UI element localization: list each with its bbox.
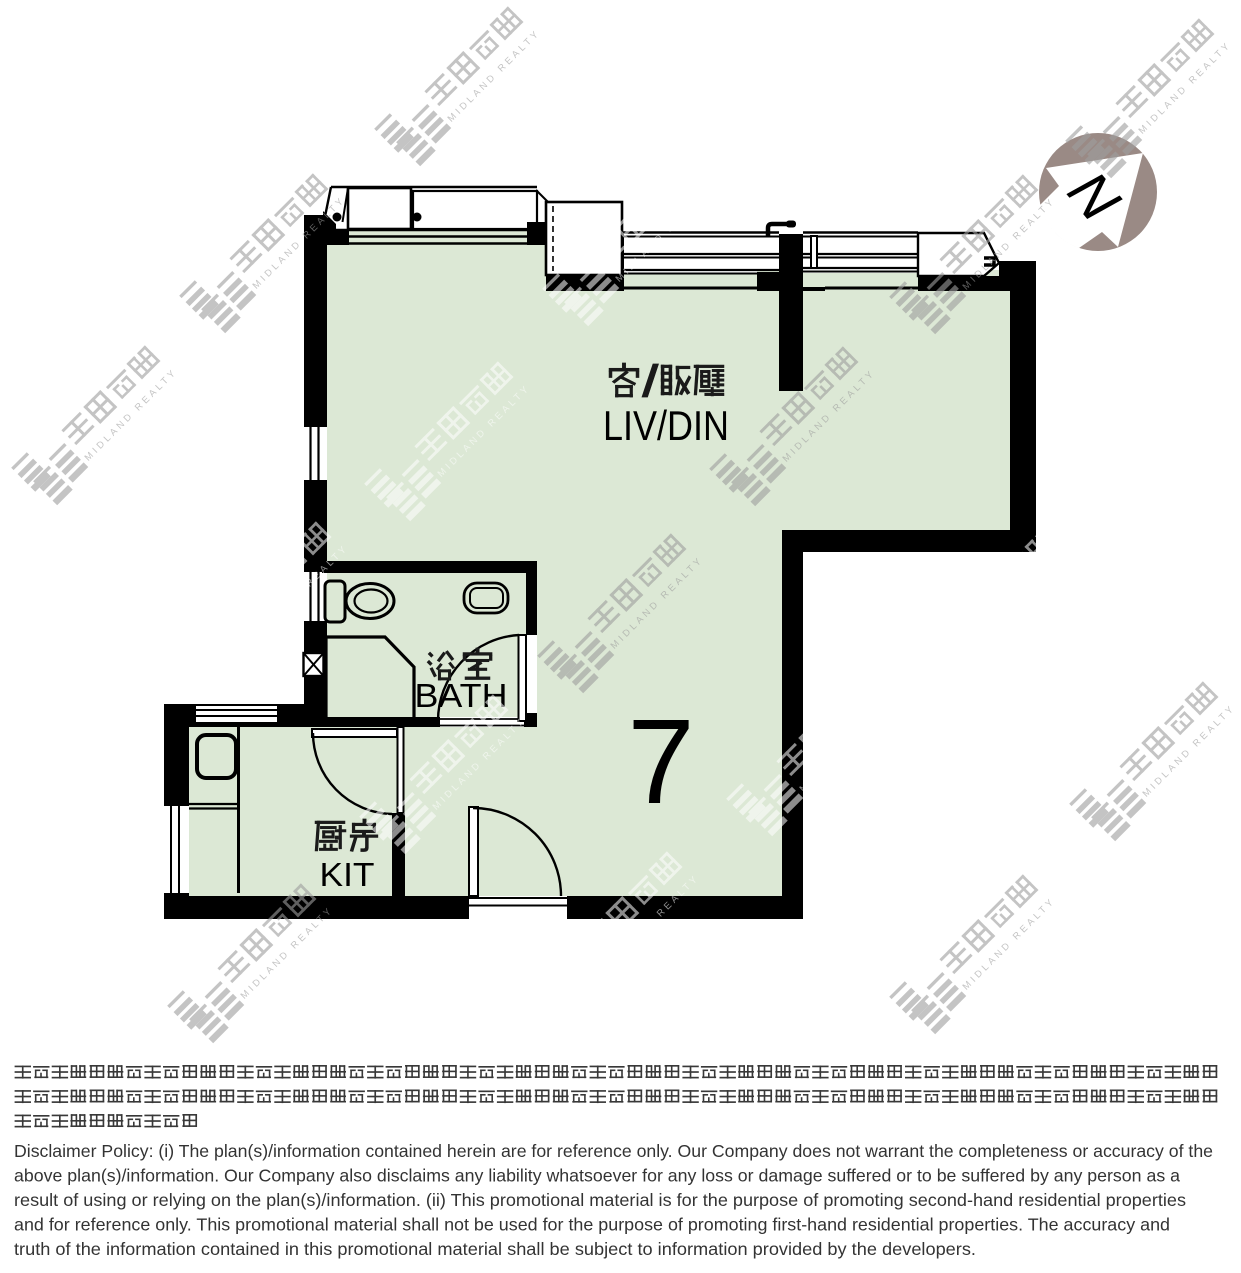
svg-text:KIT: KIT <box>320 856 375 893</box>
svg-text:and for reference only. This p: and for reference only. This promotional… <box>14 1215 1170 1235</box>
svg-text:truth of the information conta: truth of the information contained in th… <box>14 1239 976 1259</box>
svg-text:LIV/DIN: LIV/DIN <box>603 402 729 449</box>
svg-text:result of using or relying on: result of using or relying on the plan(s… <box>14 1190 1186 1210</box>
svg-text:7: 7 <box>627 693 694 829</box>
svg-text:Disclaimer Policy: (i) The pla: Disclaimer Policy: (i) The plan(s)/infor… <box>14 1141 1213 1161</box>
svg-text:above plan(s)/information. Our: above plan(s)/information. Our Company a… <box>14 1166 1180 1186</box>
